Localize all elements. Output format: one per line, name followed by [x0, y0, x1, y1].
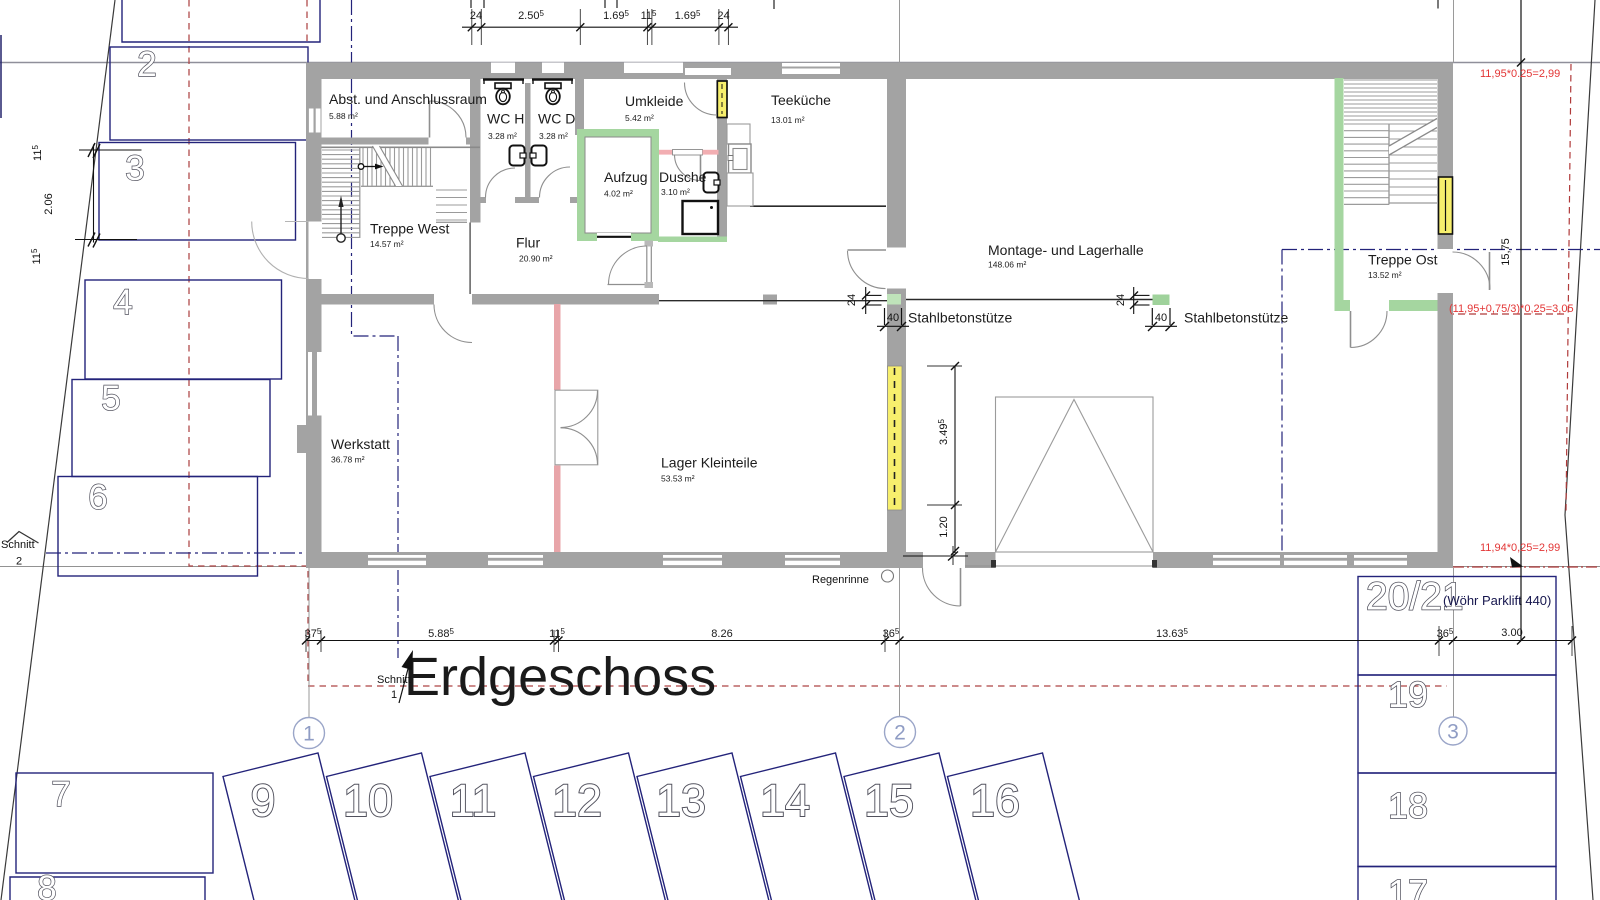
- svg-text:Umkleide: Umkleide: [625, 93, 684, 109]
- svg-text:4: 4: [113, 283, 132, 322]
- svg-text:15,75: 15,75: [1500, 238, 1512, 266]
- svg-text:148.06 m²: 148.06 m²: [988, 260, 1026, 270]
- svg-text:8: 8: [37, 869, 56, 900]
- svg-text:1: 1: [391, 689, 397, 701]
- svg-text:17: 17: [1388, 872, 1428, 900]
- svg-text:3: 3: [1447, 721, 1459, 744]
- svg-text:11,95*0.25=2,99: 11,95*0.25=2,99: [1480, 68, 1560, 80]
- svg-text:9: 9: [250, 775, 275, 826]
- svg-text:14.57 m²: 14.57 m²: [370, 239, 404, 249]
- svg-text:3.00: 3.00: [1501, 627, 1522, 639]
- svg-text:5.88 m²: 5.88 m²: [329, 111, 358, 121]
- svg-text:Aufzug: Aufzug: [604, 169, 648, 185]
- svg-text:Erdgeschoss: Erdgeschoss: [404, 647, 716, 707]
- svg-text:2: 2: [16, 556, 22, 568]
- svg-text:3.10 m²: 3.10 m²: [661, 187, 690, 197]
- svg-text:20.90 m²: 20.90 m²: [519, 254, 553, 264]
- svg-text:Teeküche: Teeküche: [771, 92, 831, 108]
- svg-text:13.01 m²: 13.01 m²: [771, 115, 805, 125]
- svg-text:3: 3: [125, 149, 144, 188]
- svg-text:Lager Kleinteile: Lager Kleinteile: [661, 455, 758, 471]
- svg-text:1: 1: [303, 723, 315, 746]
- svg-text:Dusche: Dusche: [659, 169, 707, 185]
- svg-text:12: 12: [552, 775, 602, 826]
- svg-text:53.53 m²: 53.53 m²: [661, 474, 695, 484]
- svg-text:8.26: 8.26: [711, 628, 732, 640]
- svg-text:19: 19: [1388, 674, 1428, 715]
- svg-text:13.52 m²: 13.52 m²: [1368, 270, 1402, 280]
- svg-text:5: 5: [101, 379, 120, 418]
- svg-text:WC D: WC D: [538, 111, 575, 127]
- svg-text:5.42 m²: 5.42 m²: [625, 113, 654, 123]
- svg-text:7: 7: [51, 775, 70, 814]
- svg-text:13: 13: [656, 775, 706, 826]
- svg-text:Treppe West: Treppe West: [370, 221, 449, 237]
- svg-text:3.28 m²: 3.28 m²: [488, 131, 517, 141]
- svg-text:Regenrinne: Regenrinne: [812, 574, 869, 586]
- svg-text:Flur: Flur: [516, 235, 540, 251]
- svg-text:1.20: 1.20: [938, 516, 950, 537]
- svg-text:18: 18: [1388, 785, 1428, 826]
- svg-text:2: 2: [137, 45, 156, 84]
- svg-text:3.28 m²: 3.28 m²: [539, 131, 568, 141]
- svg-text:24: 24: [846, 294, 858, 306]
- svg-text:(Wöhr Parklift 440): (Wöhr Parklift 440): [1443, 593, 1551, 608]
- svg-text:24: 24: [470, 10, 482, 22]
- svg-text:Treppe Ost: Treppe Ost: [1368, 252, 1438, 268]
- svg-text:11: 11: [450, 775, 497, 826]
- svg-text:WC H: WC H: [487, 111, 524, 127]
- svg-text:24: 24: [717, 10, 729, 22]
- svg-text:2: 2: [894, 722, 906, 745]
- svg-text:14: 14: [760, 775, 810, 826]
- svg-text:Stahlbetonstütze: Stahlbetonstütze: [908, 310, 1013, 326]
- svg-text:4.02 m²: 4.02 m²: [604, 189, 633, 199]
- svg-text:11,94*0,25=2,99: 11,94*0,25=2,99: [1480, 542, 1560, 554]
- svg-text:Abst. und Anschlussraum: Abst. und Anschlussraum: [329, 91, 487, 107]
- svg-text:Montage- und Lagerhalle: Montage- und Lagerhalle: [988, 242, 1144, 258]
- svg-text:Werkstatt: Werkstatt: [331, 436, 390, 452]
- svg-text:10: 10: [343, 775, 393, 826]
- svg-text:6: 6: [88, 478, 107, 517]
- svg-text:15: 15: [864, 775, 914, 826]
- svg-text:(11,95+0,75/3)*0,25=3,05: (11,95+0,75/3)*0,25=3,05: [1449, 303, 1574, 315]
- svg-text:36.78 m²: 36.78 m²: [331, 455, 365, 465]
- svg-text:Stahlbetonstütze: Stahlbetonstütze: [1184, 310, 1289, 326]
- svg-text:16: 16: [970, 775, 1020, 826]
- svg-text:2.06: 2.06: [43, 193, 55, 214]
- svg-text:Schnitt: Schnitt: [1, 539, 35, 551]
- svg-text:24: 24: [1115, 294, 1127, 306]
